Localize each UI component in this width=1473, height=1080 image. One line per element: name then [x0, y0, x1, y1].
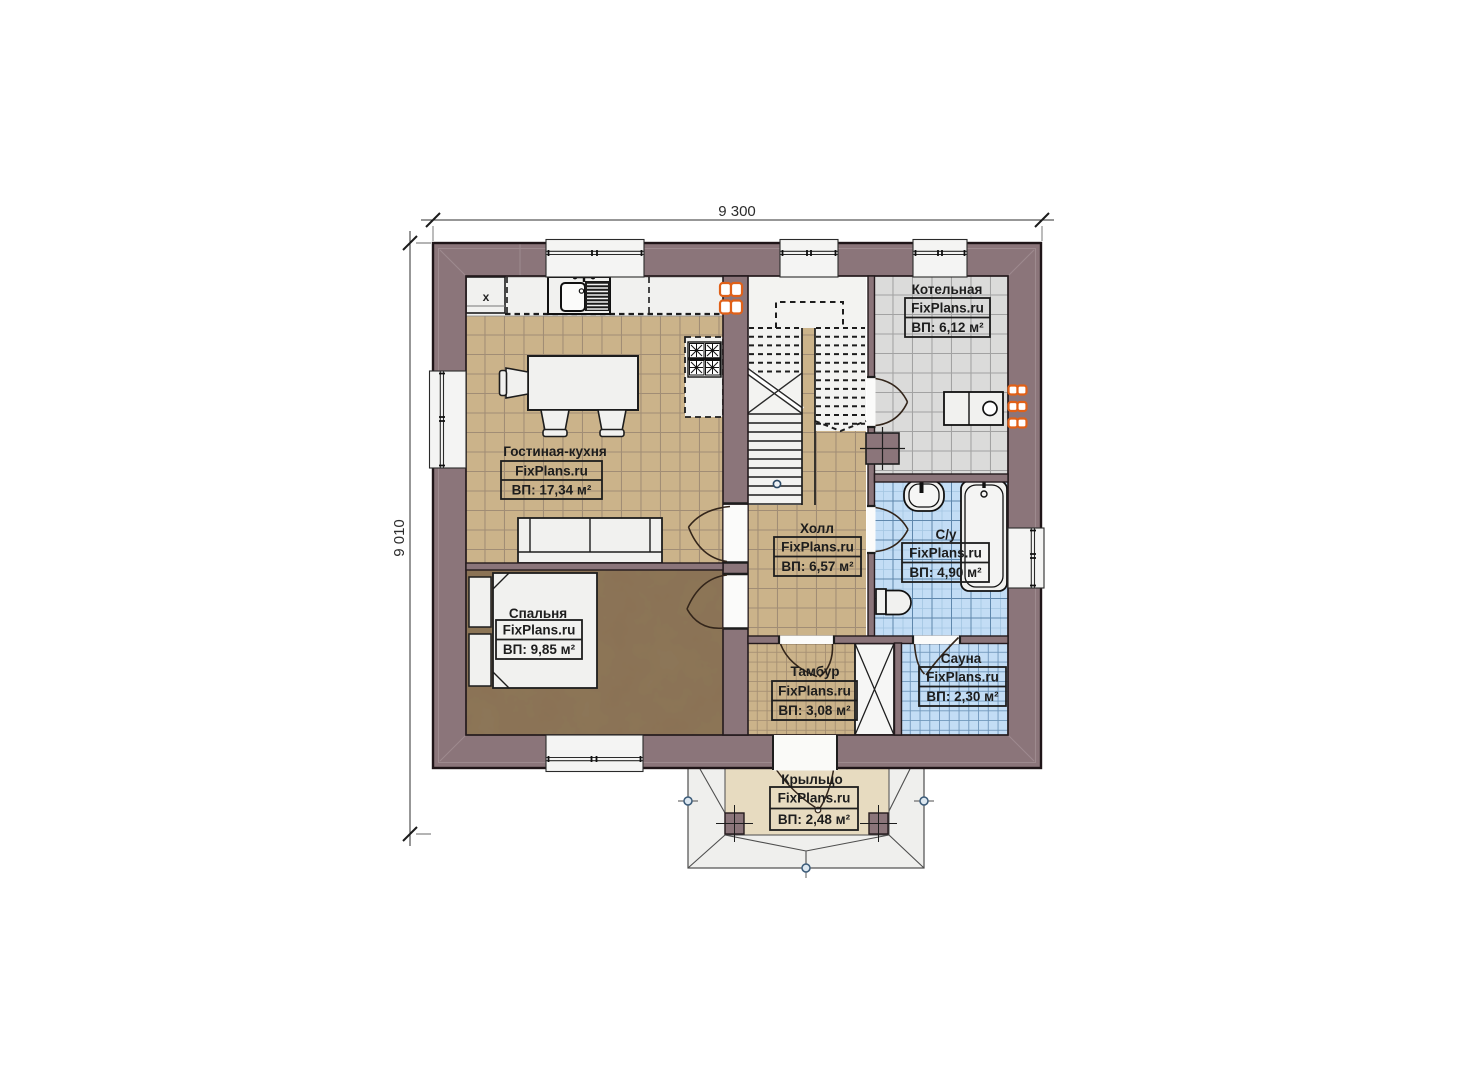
- svg-text:FixPlans.ru: FixPlans.ru: [911, 301, 984, 316]
- svg-text:FixPlans.ru: FixPlans.ru: [926, 670, 999, 685]
- svg-text:Холл: Холл: [800, 521, 834, 536]
- svg-text:Крыльцо: Крыльцо: [781, 772, 842, 787]
- svg-text:9 010: 9 010: [391, 519, 408, 557]
- svg-text:ВП: 3,08 м²: ВП: 3,08 м²: [778, 703, 851, 718]
- svg-text:ВП: 4,90 м²: ВП: 4,90 м²: [909, 565, 982, 580]
- svg-text:FixPlans.ru: FixPlans.ru: [778, 684, 851, 699]
- svg-text:Котельная: Котельная: [912, 282, 983, 297]
- svg-text:Спальня: Спальня: [509, 606, 567, 621]
- svg-text:Сауна: Сауна: [941, 651, 982, 666]
- svg-text:ВП: 2,48 м²: ВП: 2,48 м²: [778, 812, 851, 827]
- svg-text:FixPlans.ru: FixPlans.ru: [778, 791, 851, 806]
- svg-text:Тамбур: Тамбур: [791, 664, 840, 679]
- svg-text:ВП: 9,85 м²: ВП: 9,85 м²: [503, 642, 576, 657]
- svg-text:FixPlans.ru: FixPlans.ru: [781, 540, 854, 555]
- svg-text:ВП: 6,57 м²: ВП: 6,57 м²: [781, 559, 854, 574]
- svg-text:9 300: 9 300: [718, 203, 756, 220]
- svg-text:С/у: С/у: [935, 527, 957, 542]
- svg-text:FixPlans.ru: FixPlans.ru: [515, 463, 588, 478]
- svg-text:ВП: 6,12 м²: ВП: 6,12 м²: [911, 320, 984, 335]
- svg-text:x: x: [483, 290, 490, 304]
- svg-text:FixPlans.ru: FixPlans.ru: [503, 623, 576, 638]
- svg-text:ВП: 17,34 м²: ВП: 17,34 м²: [512, 482, 592, 497]
- svg-text:Гостиная-кухня: Гостиная-кухня: [503, 444, 606, 459]
- svg-text:ВП: 2,30 м²: ВП: 2,30 м²: [926, 689, 999, 704]
- svg-text:FixPlans.ru: FixPlans.ru: [909, 546, 982, 561]
